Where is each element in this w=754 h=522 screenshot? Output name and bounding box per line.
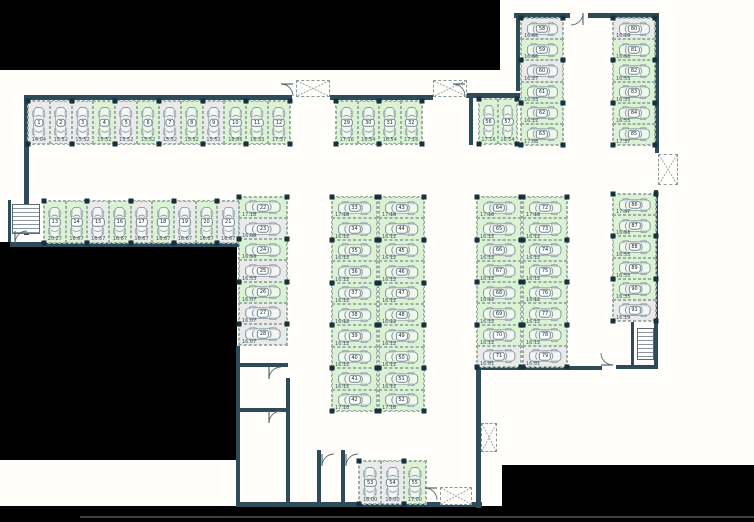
stall-number: 79 (539, 352, 551, 361)
stall-number: 14 (70, 218, 82, 227)
parking-stall[interactable]: 4416.12 (379, 218, 424, 239)
stall-number: 57 (501, 117, 513, 126)
door-swing-icon (321, 453, 335, 467)
parking-stall[interactable]: 7916.81 (523, 346, 567, 367)
stall-number: 75 (539, 267, 551, 276)
column-marker (330, 280, 335, 285)
stall-measurement: 16.54 (361, 137, 375, 143)
column-marker (561, 100, 566, 105)
column-marker (653, 100, 658, 105)
stall-measurement: 16.00 (363, 497, 377, 503)
column-marker (200, 142, 205, 147)
parking-stall[interactable]: 1416.67 (66, 201, 88, 243)
column-marker (422, 237, 427, 242)
wall (286, 378, 290, 507)
stall-measurement: 15.52 (119, 137, 133, 143)
column-marker (288, 142, 293, 147)
parking-stall[interactable]: 1816.67 (152, 201, 174, 243)
stall-number: 5 (122, 118, 131, 127)
stall-number: 32 (405, 118, 417, 127)
parking-stall[interactable]: 3716.12 (332, 283, 377, 304)
stall-number: 78 (539, 331, 551, 340)
wall (8, 200, 11, 242)
stall-measurement: 17.18 (335, 405, 349, 411)
parking-stall[interactable]: 5716.54 (498, 99, 517, 144)
column-marker (521, 322, 526, 327)
stall-number: 20 (200, 218, 212, 227)
stall-number: 87 (628, 222, 640, 231)
stall-group-58-63: 5816.655916.666016.276116.336216.126317.… (520, 17, 564, 146)
parking-stall[interactable]: 1016.86 (224, 101, 246, 144)
parking-stall[interactable]: 5916.66 (521, 39, 563, 60)
parking-stall[interactable]: 3616.12 (332, 261, 377, 282)
parking-stall[interactable]: 8716.53 (613, 215, 656, 236)
shaft-x-box-icon (658, 154, 678, 185)
stall-number: 69 (493, 310, 505, 319)
column-marker (85, 199, 90, 204)
parking-stall[interactable]: 5116.12 (379, 368, 424, 389)
parking-stall[interactable]: 7516.12 (523, 261, 567, 282)
door-swing-icon (14, 230, 28, 244)
stall-number: 55 (409, 478, 421, 487)
stall-group-80-85: 8016.198116.538216.538316.338416.538517.… (612, 17, 656, 146)
column-marker (653, 58, 658, 63)
stall-measurement: 16.67 (178, 236, 192, 242)
parking-stall[interactable]: 3916.12 (332, 325, 377, 346)
stall-number: 1 (34, 118, 43, 127)
parking-stall[interactable]: 2616.07 (239, 282, 287, 303)
column-marker (611, 276, 616, 281)
stall-number: 40 (348, 353, 360, 362)
parking-stall[interactable]: 1916.67 (174, 201, 196, 243)
shaft-x-box-icon (296, 80, 330, 97)
parking-stall[interactable]: 6216.12 (521, 103, 563, 124)
parking-stall[interactable]: 2016.67 (196, 201, 218, 243)
stall-number: 15 (92, 218, 104, 227)
door-swing-icon (268, 410, 282, 424)
stall-measurement: 16.00 (385, 497, 399, 503)
parking-stall[interactable]: 6317.08 (521, 124, 563, 145)
stall-number: 2 (56, 118, 65, 127)
parking-stall[interactable]: 4516.12 (379, 240, 424, 261)
parking-stall[interactable]: 2716.07 (239, 303, 287, 324)
stall-measurement: 15.52 (185, 137, 199, 143)
parking-stall[interactable]: 2516.53 (239, 260, 287, 281)
parking-stall[interactable]: 1320.27 (44, 201, 66, 243)
stall-group-64-71: 6417.106516.126616.126716.126816.126916.… (476, 196, 522, 368)
column-marker (288, 99, 293, 104)
parking-stall[interactable]: 7716.12 (523, 303, 567, 324)
stall-measurement: 15.52 (206, 137, 220, 143)
parking-stall[interactable]: 1116.33 (246, 101, 268, 144)
column-marker (654, 276, 659, 281)
wall (236, 346, 240, 507)
stall-number: 82 (628, 67, 640, 76)
stall-measurement: 16.54 (500, 137, 514, 143)
parking-stall[interactable]: 415.52 (93, 101, 115, 144)
stall-group-43-52: 4317.184416.124516.124616.124716.124816.… (378, 196, 425, 412)
parking-stall[interactable]: 8416.53 (613, 103, 655, 124)
column-marker (565, 237, 570, 242)
column-marker (401, 502, 406, 507)
column-marker (654, 234, 659, 239)
stall-number: 56 (482, 117, 494, 126)
stall-measurement: 16.67 (221, 236, 235, 242)
column-marker (611, 100, 616, 105)
column-marker (157, 142, 162, 147)
parking-stall[interactable]: 8116.53 (613, 39, 655, 60)
wall (469, 95, 473, 145)
column-marker (157, 99, 162, 104)
stall-number: 65 (493, 225, 505, 234)
column-marker (285, 195, 290, 200)
parking-stall[interactable]: 3516.12 (332, 240, 377, 261)
parking-stall[interactable]: 2816.07 (239, 324, 287, 345)
stall-number: 18 (157, 218, 169, 227)
parking-stall[interactable]: 6916.12 (477, 303, 521, 324)
column-marker (475, 237, 480, 242)
parking-stall[interactable]: 4317.18 (379, 197, 424, 218)
parking-stall[interactable]: 8816.53 (613, 236, 656, 257)
column-marker (521, 365, 526, 370)
column-marker (85, 241, 90, 246)
parking-stall[interactable]: 6616.12 (477, 240, 521, 261)
column-marker (565, 195, 570, 200)
stall-measurement: 16.67 (91, 236, 105, 242)
column-marker (377, 409, 382, 414)
column-marker (611, 234, 616, 239)
stall-number: 22 (257, 203, 269, 212)
parking-stall[interactable]: 1616.67 (109, 201, 131, 243)
stall-number: 50 (395, 353, 407, 362)
column-marker (128, 241, 133, 246)
parking-stall[interactable]: 8916.53 (613, 258, 656, 279)
column-marker (422, 409, 427, 414)
stall-measurement: 16.67 (156, 236, 170, 242)
stall-number: 45 (395, 246, 407, 255)
parking-stall[interactable]: 8316.33 (613, 82, 655, 103)
parking-stall[interactable]: 3116.54 (379, 101, 401, 144)
stall-number: 29 (341, 118, 353, 127)
parking-stall[interactable]: 5816.65 (521, 18, 563, 39)
parking-stall[interactable]: 515.52 (115, 101, 137, 144)
stall-number: 35 (348, 246, 360, 255)
column-marker (477, 97, 482, 102)
stall-number: 77 (539, 310, 551, 319)
column-marker (244, 99, 249, 104)
stall-measurement: 16.67 (199, 236, 213, 242)
column-marker (377, 99, 382, 104)
parking-stall[interactable]: 6016.27 (521, 60, 563, 81)
stall-measurement: 17.18 (382, 405, 396, 411)
stall-measurement: 15.52 (163, 137, 177, 143)
stall-number: 86 (628, 200, 640, 209)
parking-stall[interactable]: 114.04 (28, 101, 50, 144)
door-swing-icon (570, 12, 584, 26)
stall-number: 51 (395, 375, 407, 384)
column-marker (475, 280, 480, 285)
parking-stall[interactable]: 1217.37 (268, 101, 290, 144)
stall-group-22-28: 2217.182316.082416.532516.532616.072716.… (238, 196, 288, 346)
parking-stall[interactable]: 2416.53 (239, 239, 287, 260)
column-marker (521, 195, 526, 200)
column-marker (401, 459, 406, 464)
stall-number: 90 (628, 285, 640, 294)
column-marker (420, 99, 425, 104)
parking-stall[interactable]: 815.52 (181, 101, 203, 144)
stall-number: 37 (348, 289, 360, 298)
stall-number: 66 (493, 246, 505, 255)
parking-stall[interactable]: 8517.37 (613, 124, 655, 145)
door-swing-icon (452, 83, 466, 97)
stall-number: 17 (135, 218, 147, 227)
stall-measurement: 20.27 (48, 236, 62, 242)
stall-number: 89 (628, 264, 640, 273)
parking-stall[interactable]: 715.52 (159, 101, 181, 144)
parking-stall[interactable]: 5416.00 (381, 461, 403, 504)
column-marker (377, 280, 382, 285)
stall-measurement: 17.08 (524, 139, 538, 145)
column-marker (215, 199, 220, 204)
column-marker (654, 319, 659, 324)
stall-measurement: 17.16 (481, 137, 495, 143)
parking-stall[interactable]: 6716.12 (477, 261, 521, 282)
stall-number: 42 (348, 396, 360, 405)
column-marker (285, 321, 290, 326)
parking-stall[interactable]: 315.52 (72, 101, 94, 144)
parking-stall[interactable]: 1516.67 (87, 201, 109, 243)
stall-measurement: 16.33 (250, 137, 264, 143)
door-swing-icon (424, 487, 438, 501)
stall-group-1-12: 114.04215.52315.52415.52515.52615.52715.… (27, 100, 291, 145)
stall-measurement: 17.16 (340, 137, 354, 143)
stall-group-29-32: 2917.163016.543116.543217.16 (335, 100, 423, 145)
stall-measurement: 16.86 (228, 137, 242, 143)
column-marker (42, 241, 47, 246)
door-swing-icon (268, 366, 282, 380)
parking-stall[interactable]: 7016.12 (477, 325, 521, 346)
column-marker (334, 99, 339, 104)
stall-number: 39 (348, 332, 360, 341)
stall-number: 31 (384, 118, 396, 127)
stall-number: 9 (209, 118, 218, 127)
door-swing-icon (345, 453, 359, 467)
parking-stall[interactable]: 8617.37 (613, 194, 656, 215)
stall-number: 76 (539, 288, 551, 297)
parking-stall[interactable]: 8216.53 (613, 60, 655, 81)
parking-stall[interactable]: 915.52 (203, 101, 225, 144)
column-marker (377, 142, 382, 147)
parking-stall[interactable]: 5316.00 (359, 461, 381, 504)
parking-stall[interactable]: 2316.08 (239, 218, 287, 239)
stall-group-33-42: 3317.183416.123516.123616.123716.123816.… (331, 196, 378, 412)
parking-stall[interactable]: 1716.67 (131, 201, 153, 243)
parking-stall[interactable]: 6816.12 (477, 282, 521, 303)
parking-stall[interactable]: 5517.00 (404, 461, 426, 504)
parking-stall[interactable]: 4916.12 (379, 325, 424, 346)
column-marker (422, 366, 427, 371)
parking-stall[interactable]: 615.52 (137, 101, 159, 144)
stall-number: 46 (395, 268, 407, 277)
stall-measurement: 17.00 (408, 497, 422, 503)
parking-stall[interactable]: 7416.12 (523, 240, 567, 261)
parking-stall[interactable]: 6516.12 (477, 218, 521, 239)
floor-plan: 114.04215.52315.52415.52515.52615.52715.… (0, 0, 754, 522)
parking-stall[interactable]: 6417.10 (477, 197, 521, 218)
stall-group-53-55: 5316.005416.005517.00 (358, 460, 427, 505)
parking-stall[interactable]: 4217.18 (332, 390, 377, 411)
stall-number: 70 (493, 331, 505, 340)
stall-number: 60 (536, 67, 548, 76)
stall-number: 59 (536, 46, 548, 55)
column-marker (561, 58, 566, 63)
column-marker (565, 365, 570, 370)
stall-number: 61 (536, 88, 548, 97)
column-marker (334, 142, 339, 147)
wall (238, 408, 290, 412)
stall-number: 33 (348, 203, 360, 212)
shadow-line (80, 516, 754, 518)
stall-number: 68 (493, 288, 505, 297)
column-marker (519, 58, 524, 63)
stall-measurement: 15.52 (75, 137, 89, 143)
column-marker (171, 199, 176, 204)
parking-stall[interactable]: 7116.81 (477, 346, 521, 367)
parking-stall[interactable]: 3416.12 (332, 218, 377, 239)
column-marker (561, 16, 566, 21)
parking-stall[interactable]: 3217.16 (401, 101, 423, 144)
column-marker (519, 16, 524, 21)
parking-stall[interactable]: 5016.12 (379, 347, 424, 368)
stall-number: 47 (395, 289, 407, 298)
stall-number: 64 (493, 203, 505, 212)
shaft-x-box-icon (440, 487, 472, 505)
parking-stall[interactable]: 5217.18 (379, 390, 424, 411)
stall-measurement: 15.52 (54, 137, 68, 143)
stall-number: 7 (165, 118, 174, 127)
stall-number: 48 (395, 310, 407, 319)
column-marker (330, 323, 335, 328)
column-marker (420, 142, 425, 147)
stall-measurement: 17.16 (404, 137, 418, 143)
column-marker (422, 323, 427, 328)
door-swing-icon (600, 352, 614, 366)
stall-number: 11 (251, 118, 263, 127)
stall-number: 63 (536, 130, 548, 139)
column-marker (654, 192, 659, 197)
stall-number: 41 (348, 375, 360, 384)
stall-number: 83 (628, 88, 640, 97)
column-marker (611, 319, 616, 324)
stall-measurement: 15.52 (97, 137, 111, 143)
stall-group-13-21: 1320.271416.671516.671616.671716.671816.… (43, 200, 240, 244)
wall (616, 365, 658, 369)
stall-measurement: 17.37 (616, 139, 630, 145)
parking-stall[interactable]: 2217.18 (239, 197, 287, 218)
parking-stall[interactable]: 9116.19 (613, 300, 656, 321)
parking-stall[interactable]: 9016.33 (613, 279, 656, 300)
parking-stall[interactable]: 215.52 (50, 101, 72, 144)
parking-stall[interactable]: 4716.12 (379, 283, 424, 304)
stall-number: 91 (628, 306, 640, 315)
column-marker (330, 195, 335, 200)
parking-stall[interactable]: 4116.12 (332, 368, 377, 389)
column-marker (237, 321, 242, 326)
stall-number: 4 (100, 118, 109, 127)
parking-stall[interactable]: 3816.12 (332, 304, 377, 325)
column-marker (653, 143, 658, 148)
parking-stall[interactable]: 7816.12 (523, 325, 567, 346)
stall-number: 19 (179, 218, 191, 227)
column-marker (377, 366, 382, 371)
stall-number: 25 (257, 267, 269, 276)
stall-number: 30 (362, 118, 374, 127)
column-marker (26, 142, 31, 147)
column-marker (330, 409, 335, 414)
stall-number: 27 (257, 309, 269, 318)
stall-number: 8 (187, 118, 196, 127)
column-marker (285, 279, 290, 284)
stairs-icon (637, 328, 654, 360)
column-marker (653, 16, 658, 21)
column-marker (475, 365, 480, 370)
parking-stall[interactable]: 7616.12 (523, 282, 567, 303)
stall-number: 16 (114, 218, 126, 227)
stall-measurement: 14.04 (32, 137, 46, 143)
parking-stall[interactable]: 4616.12 (379, 261, 424, 282)
parking-stall[interactable]: 5617.16 (479, 99, 498, 144)
stall-number: 74 (539, 246, 551, 255)
column-marker (42, 199, 47, 204)
stall-measurement: 17.37 (272, 137, 286, 143)
stall-measurement: 16.81 (526, 361, 540, 367)
column-marker (611, 16, 616, 21)
parking-stall[interactable]: 3317.18 (332, 197, 377, 218)
column-marker (330, 237, 335, 242)
column-marker (565, 280, 570, 285)
stall-number: 85 (628, 130, 640, 139)
stall-number: 28 (257, 330, 269, 339)
stall-measurement: 16.81 (480, 361, 494, 367)
column-marker (519, 143, 524, 148)
column-marker (519, 100, 524, 105)
parking-stall[interactable]: 7316.12 (523, 218, 567, 239)
parking-stall[interactable]: 6116.33 (521, 82, 563, 103)
column-marker (69, 99, 74, 104)
column-marker (611, 192, 616, 197)
parking-stall[interactable]: 8016.19 (613, 18, 655, 39)
column-marker (244, 142, 249, 147)
stall-number: 38 (348, 310, 360, 319)
stall-measurement: 16.67 (113, 236, 127, 242)
column-marker (237, 195, 242, 200)
parking-stall[interactable]: 3016.54 (358, 101, 380, 144)
stall-number: 26 (257, 288, 269, 297)
stall-number: 21 (222, 218, 234, 227)
column-marker (330, 366, 335, 371)
stall-number: 81 (628, 46, 640, 55)
shaft-x-box-icon (481, 423, 497, 452)
parking-stall[interactable]: 7217.18 (523, 197, 567, 218)
stall-number: 36 (348, 268, 360, 277)
stall-measurement: 16.67 (134, 236, 148, 242)
parking-stall[interactable]: 2917.16 (336, 101, 358, 144)
stall-number: 72 (539, 203, 551, 212)
stall-number: 44 (395, 225, 407, 234)
parking-stall[interactable]: 4816.12 (379, 304, 424, 325)
stall-number: 67 (493, 267, 505, 276)
parking-stall[interactable]: 4016.12 (332, 347, 377, 368)
